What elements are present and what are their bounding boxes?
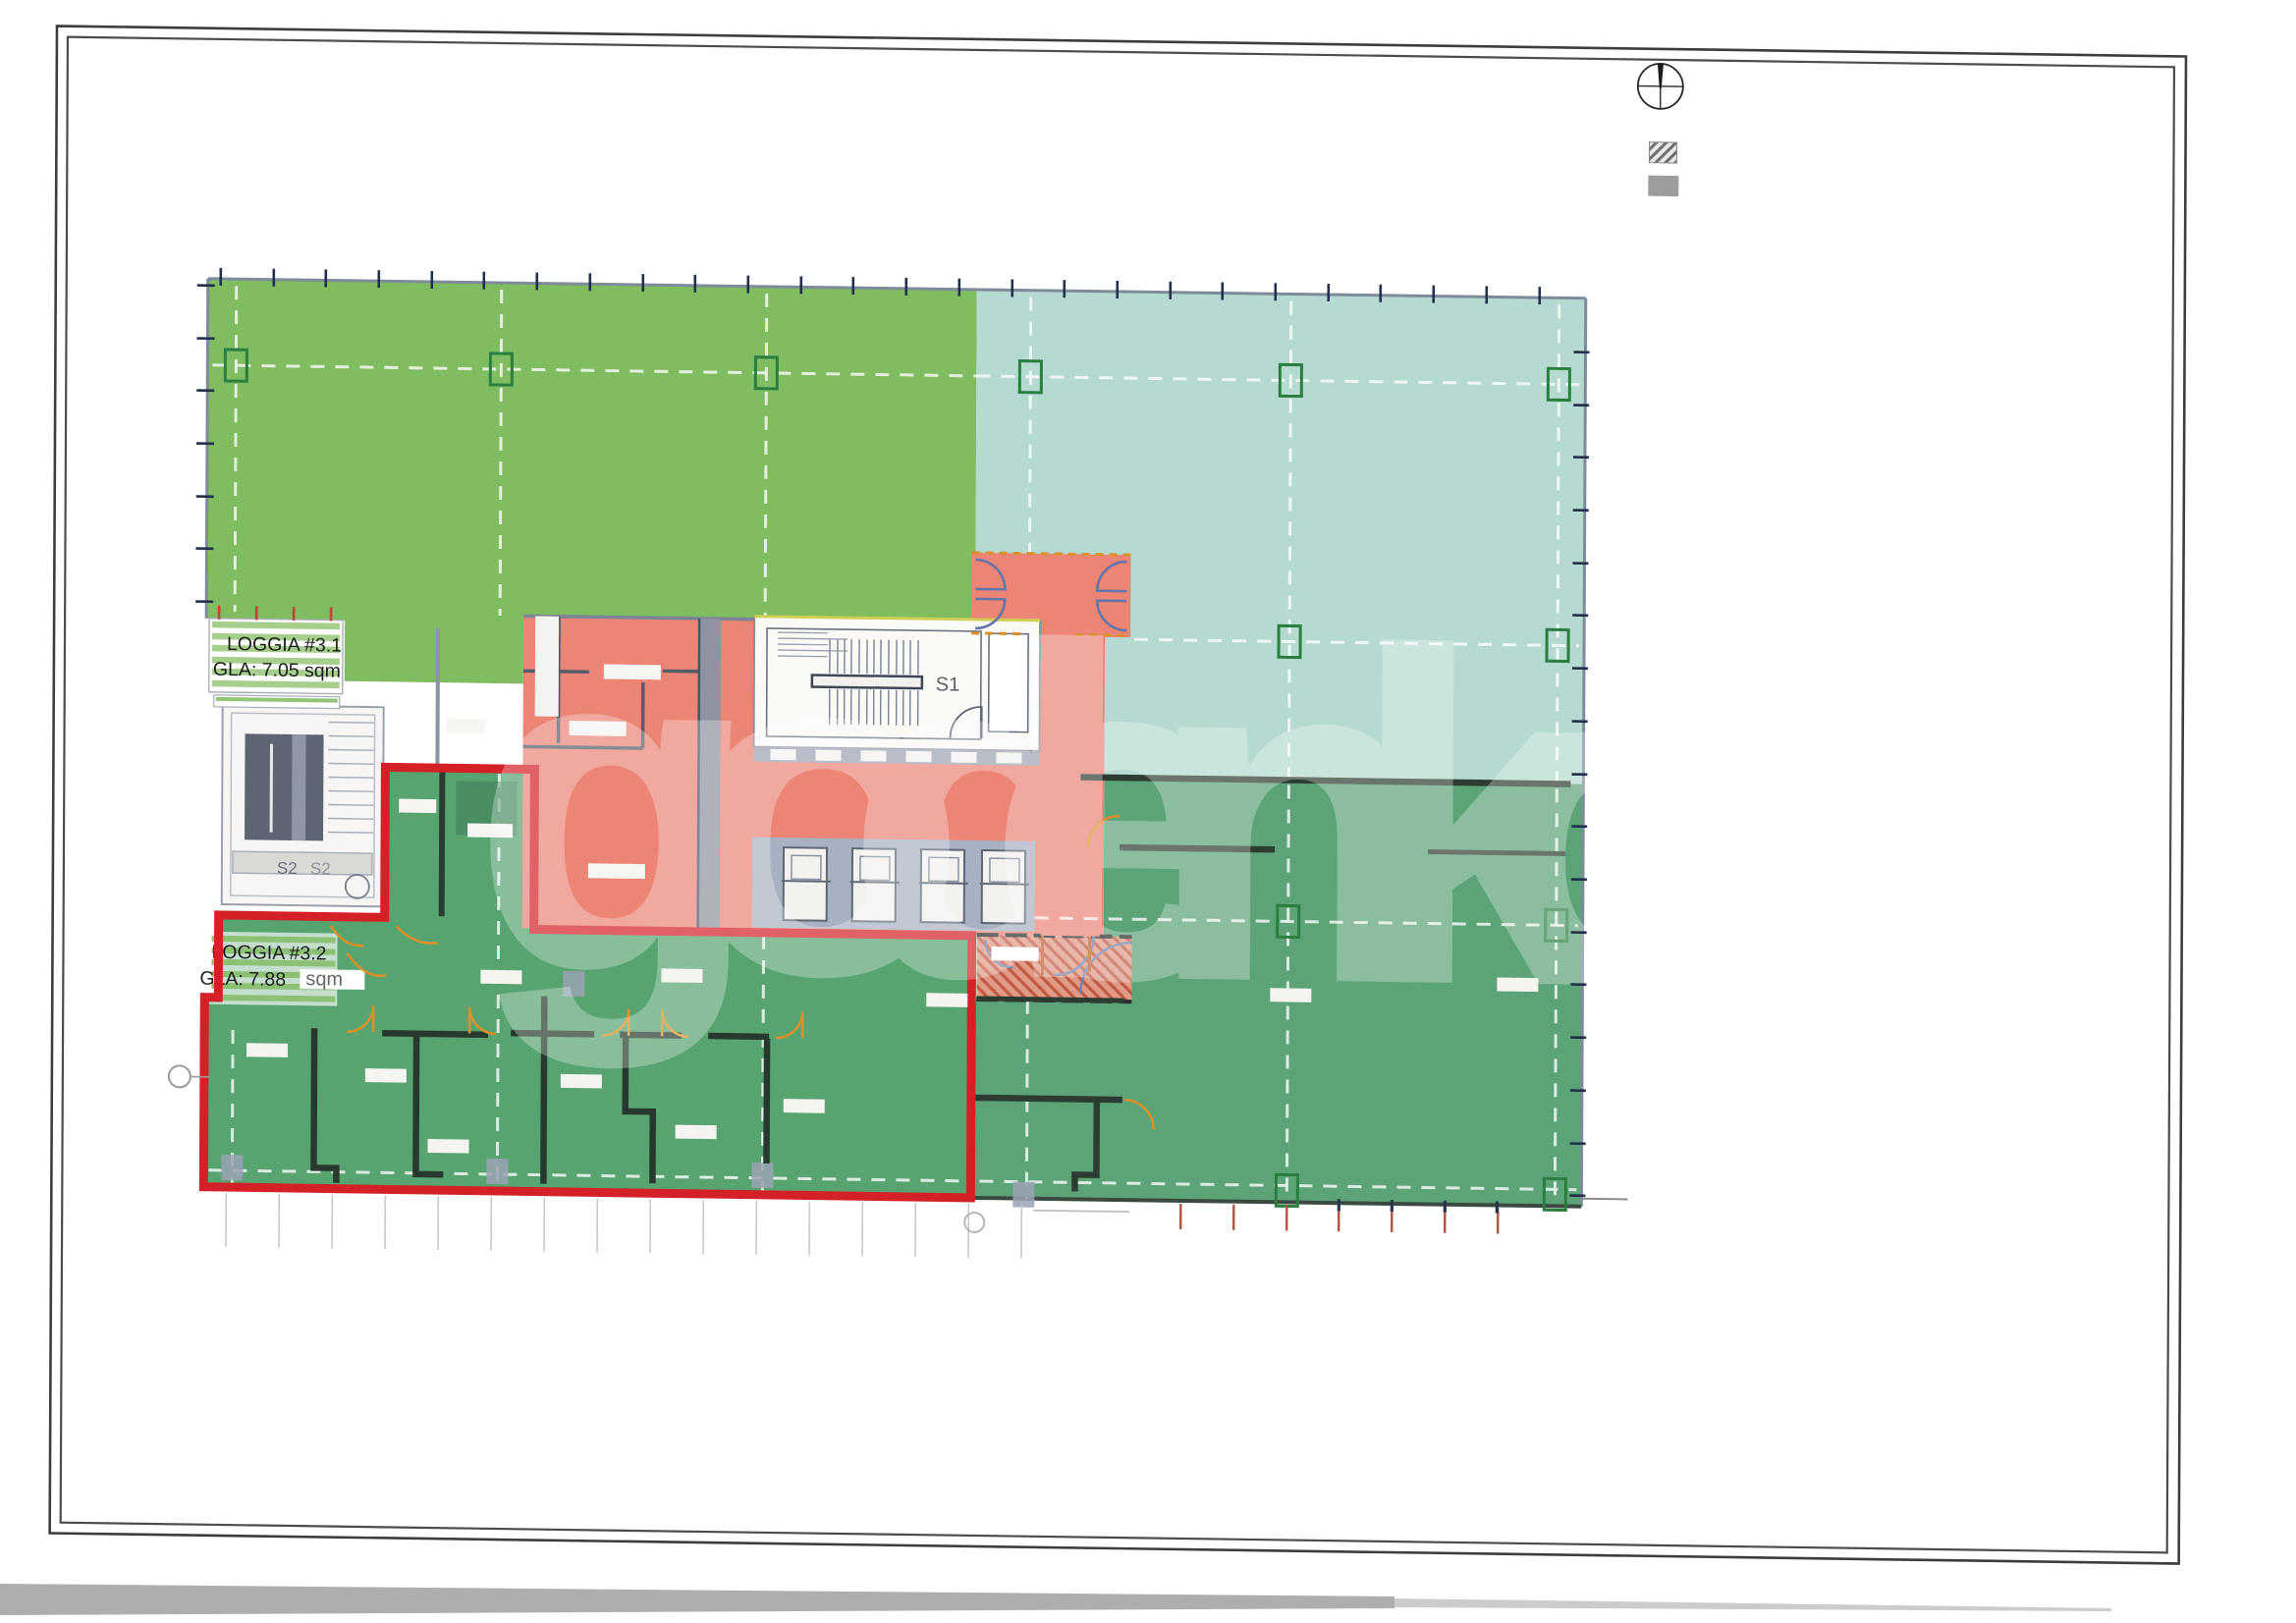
svg-text:sqm: sqm — [305, 968, 343, 991]
svg-text:GLA: 7.05 sqm: GLA: 7.05 sqm — [213, 659, 341, 682]
svg-text:S2: S2 — [277, 859, 298, 878]
svg-text:LOGGIA #3.1: LOGGIA #3.1 — [227, 633, 342, 657]
svg-text:o: o — [1476, 562, 1761, 1081]
svg-text:S2: S2 — [310, 859, 331, 878]
svg-text:GLA: 7.88: GLA: 7.88 — [199, 968, 286, 991]
svg-text:LOGGIA #3.2: LOGGIA #3.2 — [211, 942, 326, 965]
